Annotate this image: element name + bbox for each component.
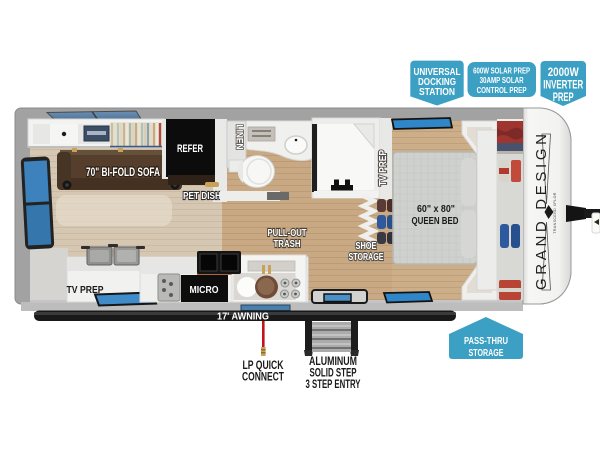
svg-text:2000W: 2000W xyxy=(548,67,579,79)
svg-text:TRANSCEND XPLOR: TRANSCEND XPLOR xyxy=(553,192,557,234)
svg-text:30AMP SOLAR: 30AMP SOLAR xyxy=(480,76,524,85)
svg-text:CONTROL PREP: CONTROL PREP xyxy=(477,86,528,95)
svg-text:STORAGE: STORAGE xyxy=(469,347,504,359)
svg-text:STATION: STATION xyxy=(419,86,455,98)
svg-text:MICRO: MICRO xyxy=(190,284,219,296)
svg-text:PREP: PREP xyxy=(553,92,574,104)
svg-text:TRASH: TRASH xyxy=(274,238,301,250)
svg-text:70" BI-FOLD SOFA: 70" BI-FOLD SOFA xyxy=(86,167,160,179)
svg-text:60" x 80": 60" x 80" xyxy=(417,203,455,215)
svg-text:PASS-THRU: PASS-THRU xyxy=(464,335,508,347)
svg-text:17' AWNING: 17' AWNING xyxy=(217,312,269,323)
svg-text:QUEEN BED: QUEEN BED xyxy=(412,215,459,227)
svg-text:LINEN: LINEN xyxy=(235,125,245,150)
svg-text:3 STEP ENTRY: 3 STEP ENTRY xyxy=(306,379,361,391)
svg-text:600W SOLAR PREP: 600W SOLAR PREP xyxy=(473,66,530,75)
svg-text:CONNECT: CONNECT xyxy=(242,372,284,384)
svg-text:INVERTER: INVERTER xyxy=(543,80,583,92)
svg-text:ALUMINUM: ALUMINUM xyxy=(309,356,357,368)
svg-text:PET DISH: PET DISH xyxy=(183,190,221,202)
svg-text:REFER: REFER xyxy=(177,143,203,155)
svg-text:SOLID STEP: SOLID STEP xyxy=(310,368,357,380)
svg-text:STORAGE: STORAGE xyxy=(349,251,384,263)
svg-text:LP QUICK: LP QUICK xyxy=(243,360,285,372)
svg-text:TV PREP: TV PREP xyxy=(377,150,389,186)
